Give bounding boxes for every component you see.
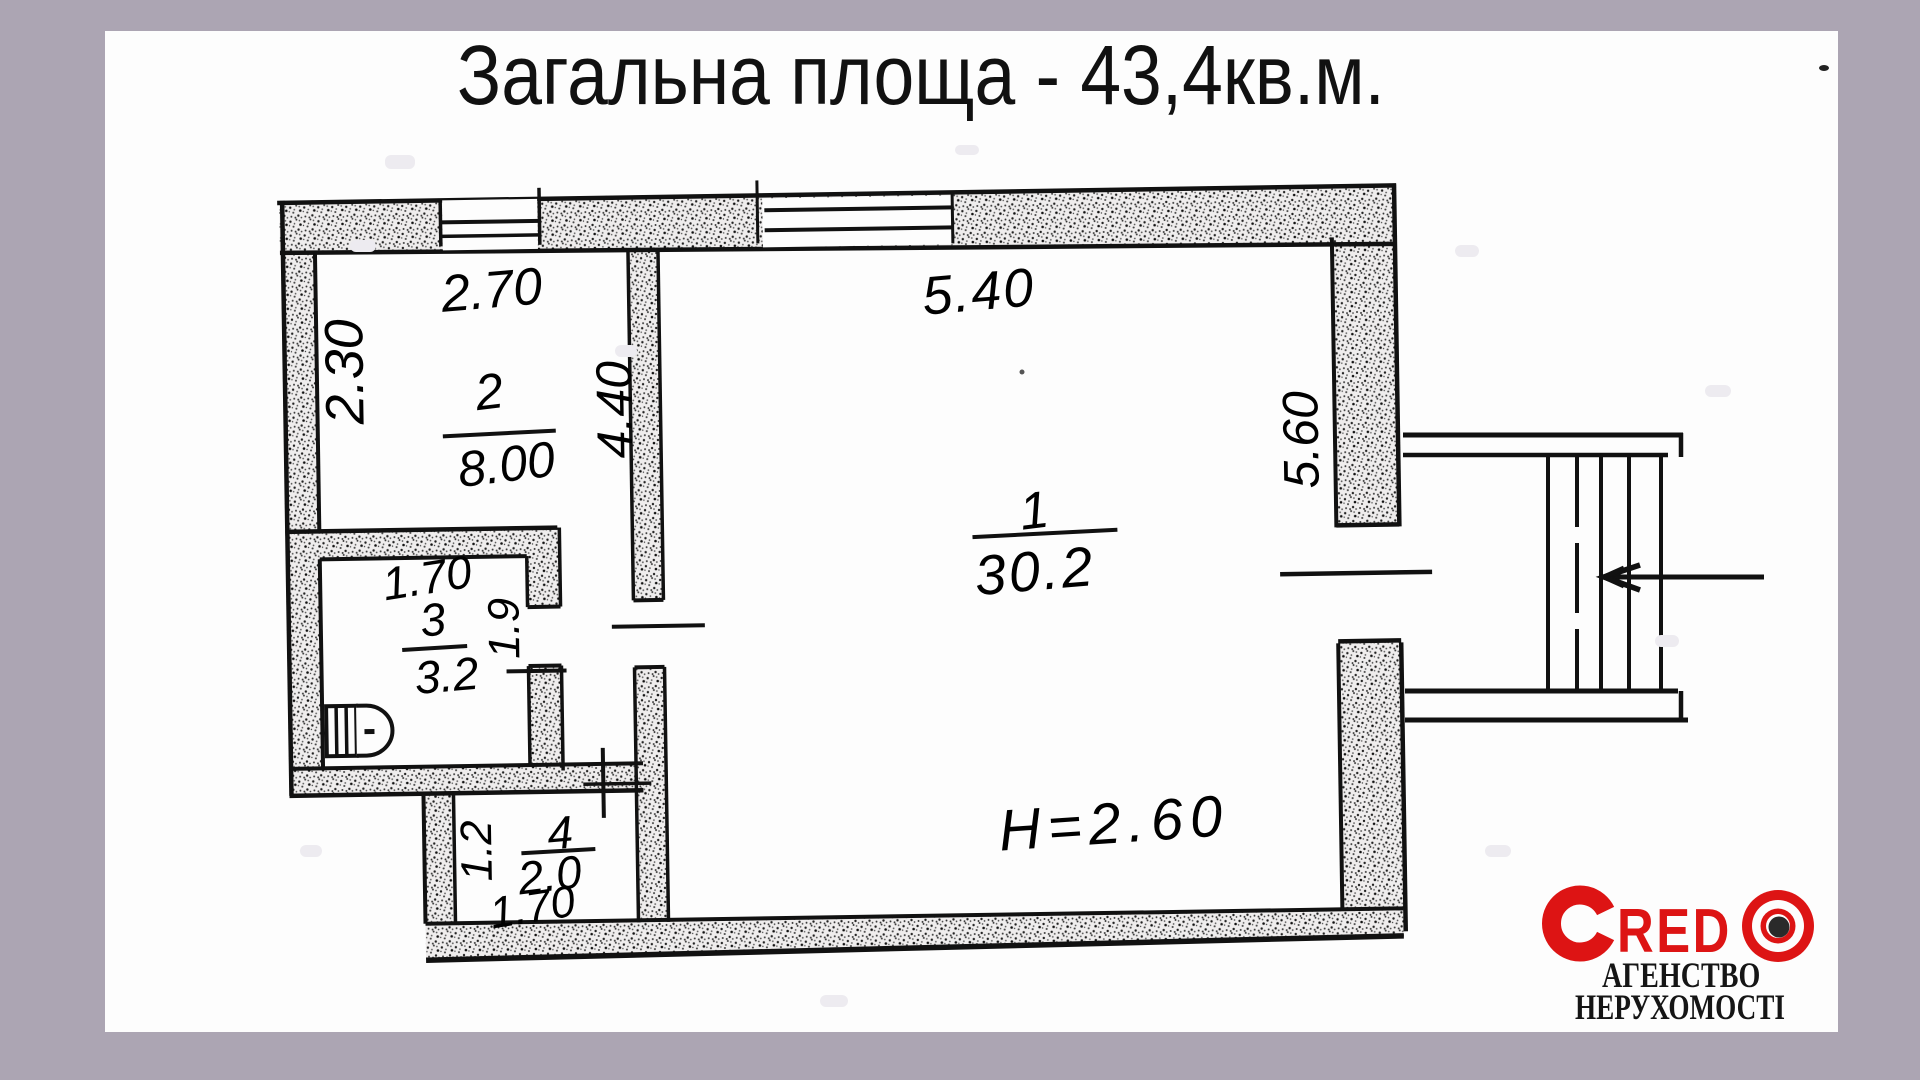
svg-text:3.2: 3.2: [412, 647, 480, 704]
svg-text:30.2: 30.2: [972, 534, 1098, 607]
svg-text:5.60: 5.60: [1272, 391, 1330, 489]
svg-text:1.2: 1.2: [452, 820, 502, 882]
svg-text:1.9: 1.9: [479, 597, 529, 659]
svg-text:2.30: 2.30: [314, 319, 376, 426]
svg-text:4.40: 4.40: [586, 360, 644, 458]
svg-text:2.70: 2.70: [438, 257, 545, 324]
svg-text:H=2.60: H=2.60: [997, 783, 1232, 864]
svg-text:5.40: 5.40: [920, 257, 1038, 326]
svg-text:8.00: 8.00: [455, 431, 559, 498]
svg-text:2: 2: [471, 362, 507, 421]
